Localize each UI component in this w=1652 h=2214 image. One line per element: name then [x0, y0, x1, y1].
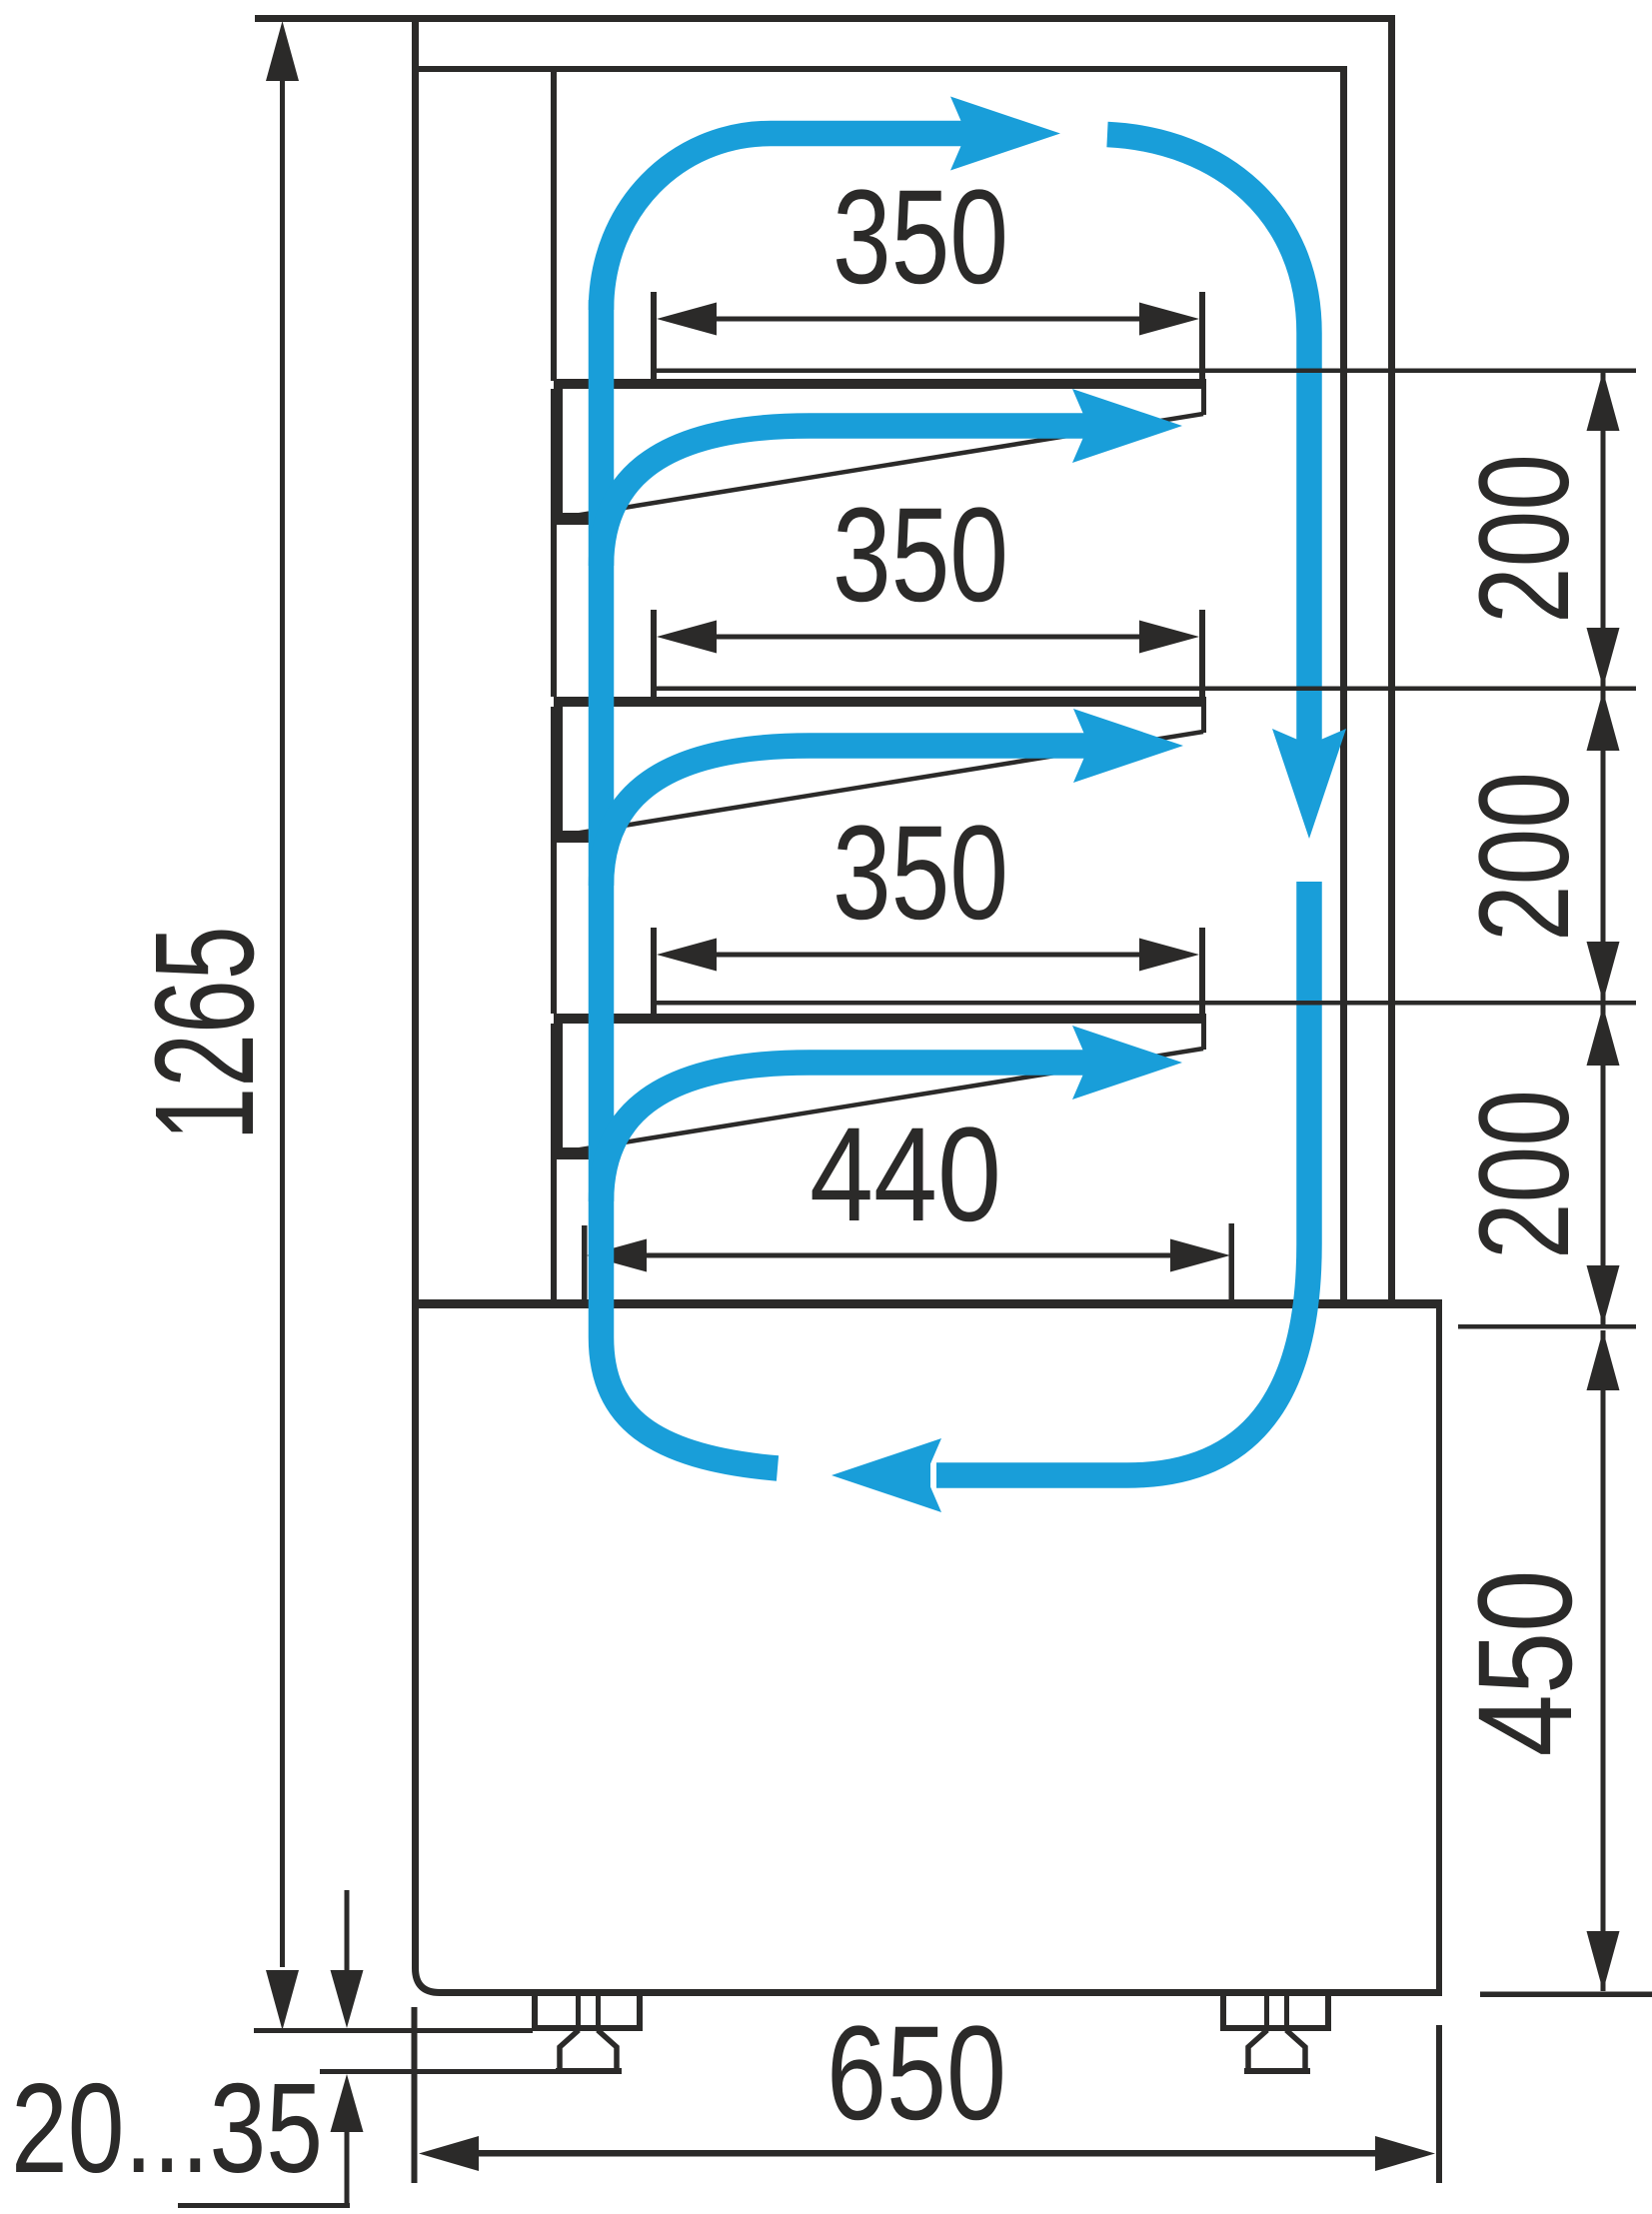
svg-text:440: 440 — [810, 1101, 1001, 1249]
svg-text:200: 200 — [1453, 772, 1596, 942]
svg-text:1265: 1265 — [125, 927, 283, 1141]
svg-text:200: 200 — [1453, 1090, 1596, 1259]
svg-text:450: 450 — [1451, 1570, 1600, 1757]
svg-text:350: 350 — [832, 163, 1008, 312]
svg-text:20...35: 20...35 — [11, 2057, 323, 2199]
svg-text:350: 350 — [832, 799, 1008, 948]
svg-text:200: 200 — [1453, 454, 1596, 624]
svg-text:350: 350 — [832, 481, 1008, 630]
svg-text:650: 650 — [826, 1999, 1006, 2148]
